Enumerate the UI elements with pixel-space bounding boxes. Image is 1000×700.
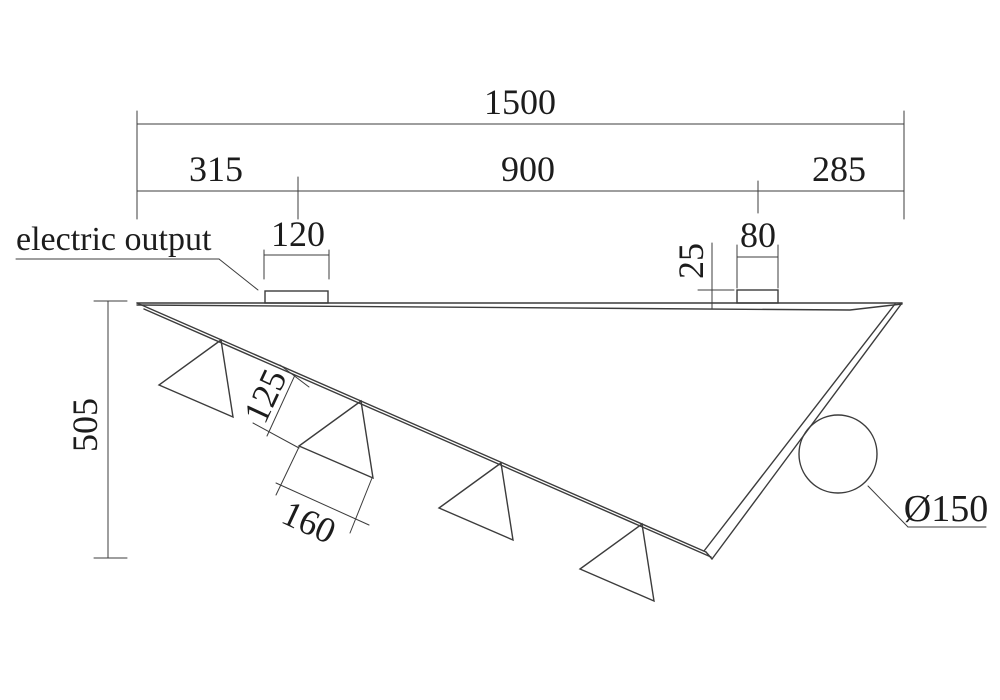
dim-label-overall-height: 505: [65, 398, 105, 452]
callout-label-diameter: Ø150: [904, 488, 988, 530]
dim-label-segment-middle: 900: [501, 149, 555, 189]
dim-label-segment-right: 285: [812, 149, 866, 189]
dim-label-total-length: 1500: [484, 82, 556, 122]
technical-drawing-canvas: 1500 315 900 285 120 80 25 505 125 160 e…: [0, 0, 1000, 700]
dim-label-segment-left: 315: [189, 149, 243, 189]
callout-label-electric-output: electric output: [16, 221, 212, 258]
dim-label-connector-left-width: 120: [271, 214, 325, 254]
dim-label-connector-right-width: 80: [740, 215, 776, 255]
dim-label-connector-height: 25: [671, 243, 711, 279]
technical-drawing-page: 1500 315 900 285 120 80 25 505 125 160 e…: [0, 0, 1000, 700]
